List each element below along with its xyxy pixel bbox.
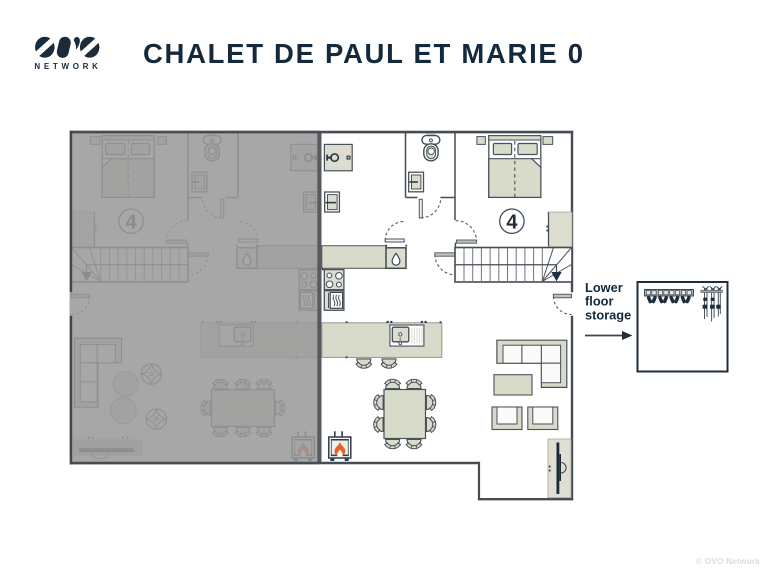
- svg-text:© OVO Network: © OVO Network: [696, 556, 760, 566]
- svg-text:floor: floor: [585, 294, 613, 309]
- svg-text:storage: storage: [585, 307, 631, 322]
- svg-text:CHALET DE PAUL ET MARIE 0: CHALET DE PAUL ET MARIE 0: [143, 38, 585, 69]
- svg-text:4: 4: [506, 211, 518, 233]
- svg-text:NETWORK: NETWORK: [34, 62, 101, 71]
